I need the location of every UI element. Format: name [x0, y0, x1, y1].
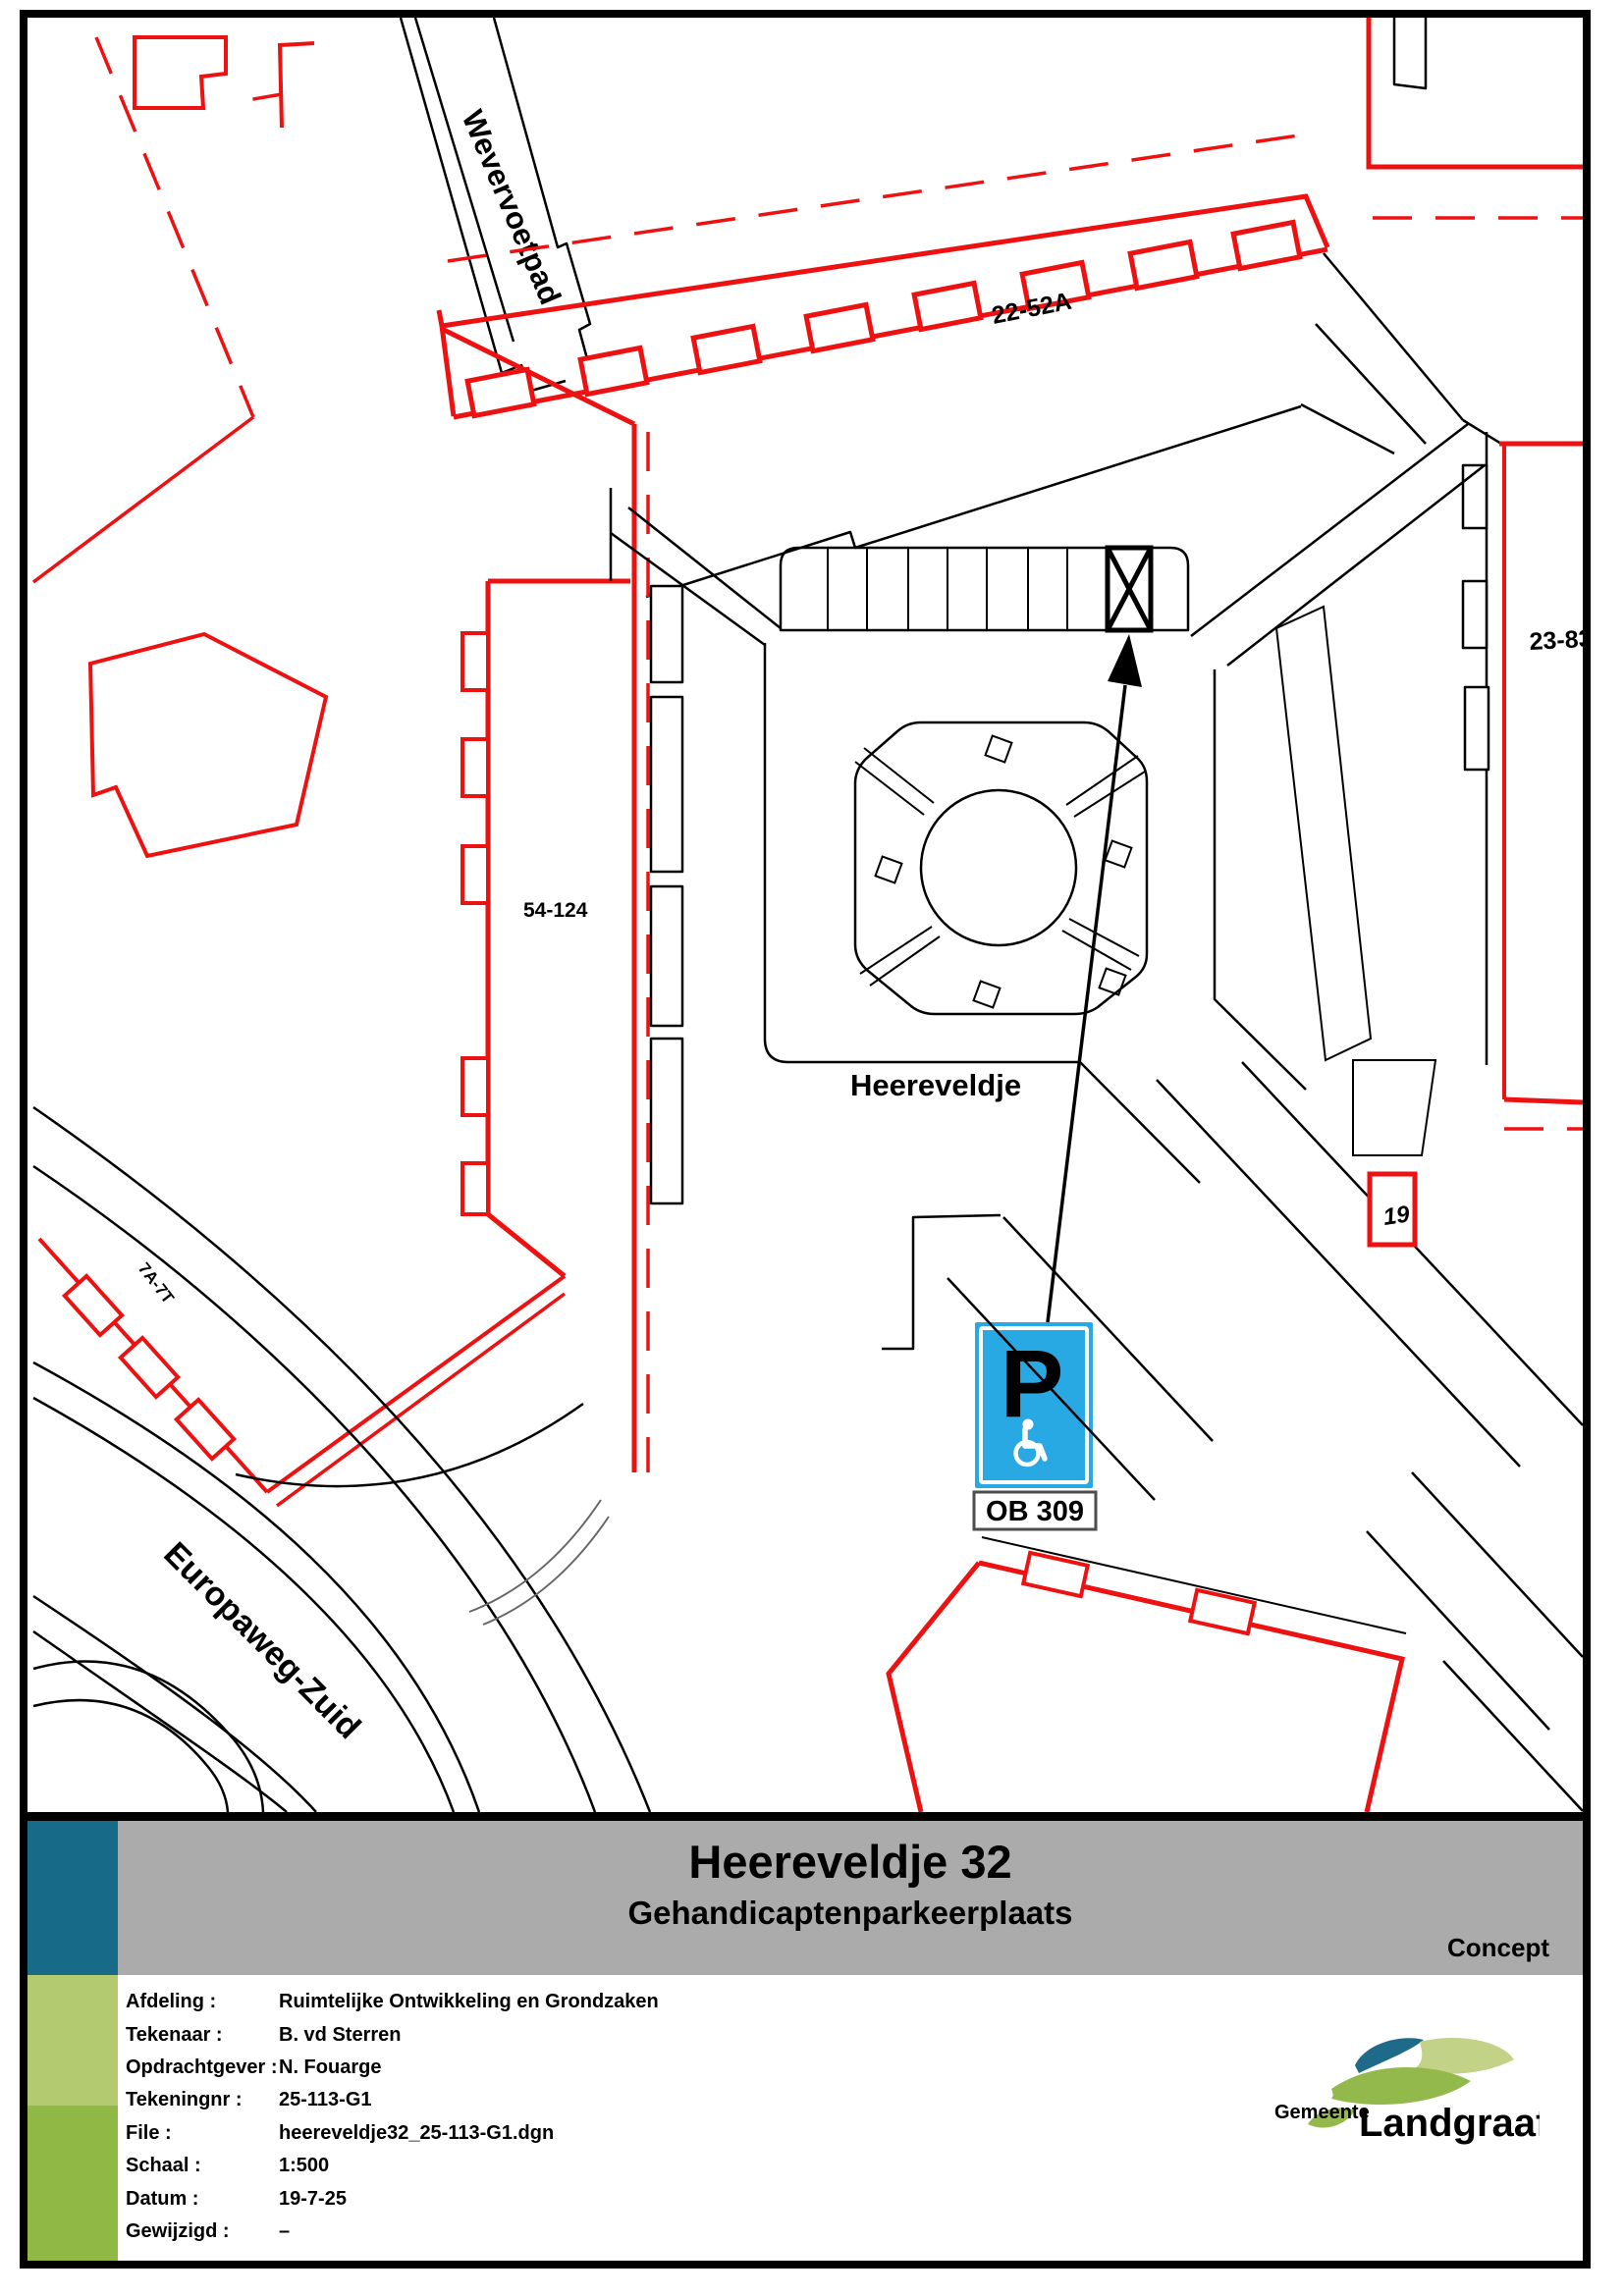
sign-code-label: OB 309: [986, 1496, 1084, 1527]
field-row-opdrachtgever: Opdrachtgever : N. Fouarge: [126, 2052, 659, 2084]
color-bar: [27, 1821, 118, 2261]
place-label-heereveldje: Heereveldje: [850, 1068, 1021, 1102]
field-value: Ruimtelijke Ontwikkeling en Grondzaken: [279, 1991, 659, 2013]
field-row-gewijzigd: Gewijzigd : –: [126, 2216, 659, 2248]
field-label: Schaal :: [126, 2155, 279, 2177]
building-23-83: [1463, 432, 1583, 1129]
metadata-fields: Afdeling : Ruimtelijke Ontwikkeling en G…: [126, 1986, 659, 2248]
buildings-topleft-red: [135, 37, 314, 128]
logo-name: Landgraaf: [1359, 2102, 1540, 2145]
field-row-afdeling: Afdeling : Ruimtelijke Ontwikkeling en G…: [126, 1986, 659, 2018]
field-label: Gewijzigd :: [126, 2220, 279, 2243]
field-value: N. Fouarge: [279, 2056, 381, 2079]
field-label: Opdrachtgever :: [126, 2056, 279, 2079]
map-area: Wevervoetpad: [27, 18, 1583, 1812]
building-19-box: 19: [1370, 1174, 1415, 1245]
building-topright-red: [1369, 18, 1583, 218]
color-bar-teal: [27, 1821, 118, 1975]
logo-prefix: Gemeente: [1274, 2102, 1370, 2123]
parking-sign: P: [975, 1322, 1093, 1488]
logo-leaf-light: [1414, 2038, 1514, 2074]
red-house-west: [90, 634, 326, 856]
parking-strip: [781, 548, 1188, 630]
courtyard-diamonds: [876, 736, 1132, 1008]
field-value: –: [279, 2220, 290, 2243]
field-value: 19-7-25: [279, 2188, 347, 2211]
building-label-23-83: 23-83: [1529, 625, 1583, 656]
boundary-lines-left: [33, 37, 253, 582]
building-54-124: [462, 581, 630, 1276]
field-value: 25-113-G1: [279, 2089, 372, 2111]
field-value: 1:500: [279, 2155, 329, 2177]
title-block: Heereveldje 32 Gehandicaptenparkeerplaat…: [27, 1812, 1583, 2261]
building-22-52a: [439, 133, 1327, 417]
sign-code-box: OB 309: [974, 1492, 1096, 1529]
drawing-frame: Wevervoetpad: [20, 10, 1591, 2269]
field-label: Afdeling :: [126, 1991, 279, 2013]
gemeente-landgraaf-logo: Gemeente Landgraaf: [1274, 2032, 1540, 2164]
field-row-schaal: Schaal : 1:500: [126, 2150, 659, 2182]
field-label: Tekenaar :: [126, 2024, 279, 2047]
title-band: Heereveldje 32 Gehandicaptenparkeerplaat…: [118, 1821, 1583, 1975]
field-value: B. vd Sterren: [279, 2024, 401, 2047]
field-row-file: File : heereveldje32_25-113-G1.dgn: [126, 2117, 659, 2150]
field-label: Tekeningnr :: [126, 2089, 279, 2111]
status-label: Concept: [1447, 1933, 1549, 1963]
field-row-datum: Datum : 19-7-25: [126, 2182, 659, 2215]
field-label: File :: [126, 2122, 279, 2145]
drawing-title: Heereveldje 32: [118, 1821, 1583, 1889]
street-diagonals-ne: [1191, 424, 1485, 666]
junction-paths-topright: [1301, 253, 1501, 454]
field-row-tekeningnr: Tekeningnr : 25-113-G1: [126, 2084, 659, 2116]
logo-graphic: Gemeente Landgraaf: [1274, 2032, 1540, 2164]
street-label-europaweg-zuid: Europaweg-Zuid: [156, 1535, 367, 1746]
location-arrow: [1048, 634, 1142, 1322]
building-label-19: 19: [1381, 1201, 1412, 1231]
color-bar-green: [27, 2106, 118, 2261]
building-label-22-52a: 22-52A: [990, 288, 1074, 330]
building-label-54-124: 54-124: [523, 899, 588, 922]
field-label: Datum :: [126, 2188, 279, 2211]
narrow-building-east: [1276, 607, 1371, 1060]
drawing-subtitle: Gehandicaptenparkeerplaats: [118, 1895, 1583, 1932]
field-value: heereveldje32_25-113-G1.dgn: [279, 2122, 554, 2145]
field-row-tekenaar: Tekenaar : B. vd Sterren: [126, 2018, 659, 2051]
color-bar-light-green: [27, 1975, 118, 2106]
building-se-red: [889, 1537, 1406, 1812]
map-drawing: Wevervoetpad: [27, 18, 1583, 1812]
